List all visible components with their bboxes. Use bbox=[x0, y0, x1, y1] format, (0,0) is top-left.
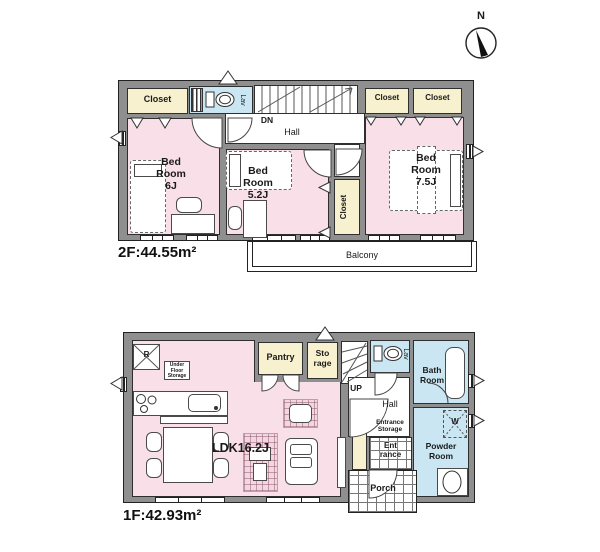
powder-room-label: Powder Room bbox=[416, 442, 466, 461]
pantry-label: Pantry bbox=[258, 352, 303, 362]
window bbox=[155, 497, 225, 503]
bath-line2: Room bbox=[415, 376, 449, 386]
bath-room-label: Bath Room bbox=[415, 366, 449, 385]
porch-label: Porch bbox=[352, 483, 414, 493]
entrance-label: Ent rance bbox=[369, 442, 412, 460]
hall-label: Hall bbox=[276, 127, 308, 137]
window bbox=[300, 235, 330, 241]
bedroom6-line3: 6J bbox=[143, 181, 199, 193]
closet-label: Closet bbox=[413, 94, 462, 103]
closet-label: Closet bbox=[340, 179, 354, 235]
chair-icon bbox=[146, 432, 162, 452]
floor2-area-label: 2F:44.55m² bbox=[118, 245, 238, 262]
bedroom52-line3: 5.2J bbox=[230, 190, 286, 202]
floor2-hall-vestibule bbox=[334, 144, 360, 177]
floor-plan-canvas: N Closet Lav DN Hall Bed Room 6J Bed Roo… bbox=[0, 0, 600, 552]
window bbox=[120, 377, 127, 392]
floor-cushion-icon bbox=[253, 463, 267, 481]
shelf-icon bbox=[191, 88, 203, 112]
ufs-line3: Storage bbox=[164, 374, 190, 380]
hall-label: Hall bbox=[372, 399, 408, 409]
kitchen-counter-lip bbox=[160, 416, 228, 424]
powder-line2: Room bbox=[416, 452, 466, 462]
window bbox=[119, 131, 126, 146]
window bbox=[368, 235, 400, 241]
window bbox=[266, 497, 320, 503]
bedroom6-line2: Room bbox=[143, 169, 199, 181]
closet-label: Closet bbox=[365, 94, 409, 103]
chair-icon bbox=[146, 458, 162, 478]
low-table-icon bbox=[289, 404, 312, 423]
bedroom75-line1: Bed bbox=[398, 153, 454, 165]
window bbox=[468, 414, 475, 428]
under-floor-storage-label: Under Floor Storage bbox=[164, 363, 190, 380]
lav-label: Lav bbox=[236, 88, 246, 112]
closet-label: Closet bbox=[127, 94, 188, 104]
bedroom75-label: Bed Room 7.5J bbox=[398, 153, 454, 188]
window bbox=[466, 144, 473, 159]
entstor-line1: Entrance bbox=[368, 419, 412, 426]
sink-icon bbox=[188, 394, 221, 412]
bedroom52-line1: Bed bbox=[230, 166, 286, 178]
compass-icon bbox=[466, 28, 496, 58]
sofa-cushion-icon bbox=[290, 457, 312, 468]
desk-icon bbox=[171, 214, 215, 234]
refrigerator-label: R bbox=[133, 351, 160, 360]
storage-line2: rage bbox=[307, 359, 338, 369]
bedroom6-label: Bed Room 6J bbox=[143, 157, 199, 192]
up-label: UP bbox=[344, 384, 368, 394]
window bbox=[186, 235, 218, 241]
balcony-label: Balcony bbox=[247, 250, 477, 260]
desk-icon bbox=[243, 200, 267, 238]
window bbox=[420, 235, 456, 241]
bedroom6-line1: Bed bbox=[143, 157, 199, 169]
ldk-label: LDK16.2J bbox=[212, 441, 282, 455]
bedroom52-line2: Room bbox=[230, 178, 286, 190]
washer-label: W bbox=[443, 418, 467, 427]
dining-table-icon bbox=[163, 427, 213, 483]
window bbox=[468, 374, 475, 388]
compass-north-label: N bbox=[473, 10, 489, 22]
sofa-cushion-icon bbox=[290, 444, 312, 455]
lav-label: Lav bbox=[399, 342, 409, 366]
bedroom52-label: Bed Room 5.2J bbox=[230, 166, 286, 201]
entrance-storage-label: Entrance Storage bbox=[368, 419, 412, 434]
chair-icon bbox=[213, 458, 229, 478]
floor1-entrance-storage-cabinet bbox=[352, 414, 367, 470]
floor2-stairs bbox=[254, 85, 358, 114]
dn-label: DN bbox=[256, 116, 278, 126]
entrance-line2: rance bbox=[369, 451, 412, 460]
vanity-counter-icon bbox=[437, 468, 468, 496]
storage-label: Sto rage bbox=[307, 349, 338, 368]
chair-icon bbox=[176, 197, 202, 213]
bedroom75-line2: Room bbox=[398, 165, 454, 177]
tv-board-icon bbox=[337, 437, 346, 488]
chair-icon bbox=[228, 206, 242, 230]
window bbox=[140, 235, 174, 241]
entstor-line2: Storage bbox=[368, 426, 412, 433]
floor1-area-label: 1F:42.93m² bbox=[123, 508, 243, 525]
bedroom75-line3: 7.5J bbox=[398, 177, 454, 189]
